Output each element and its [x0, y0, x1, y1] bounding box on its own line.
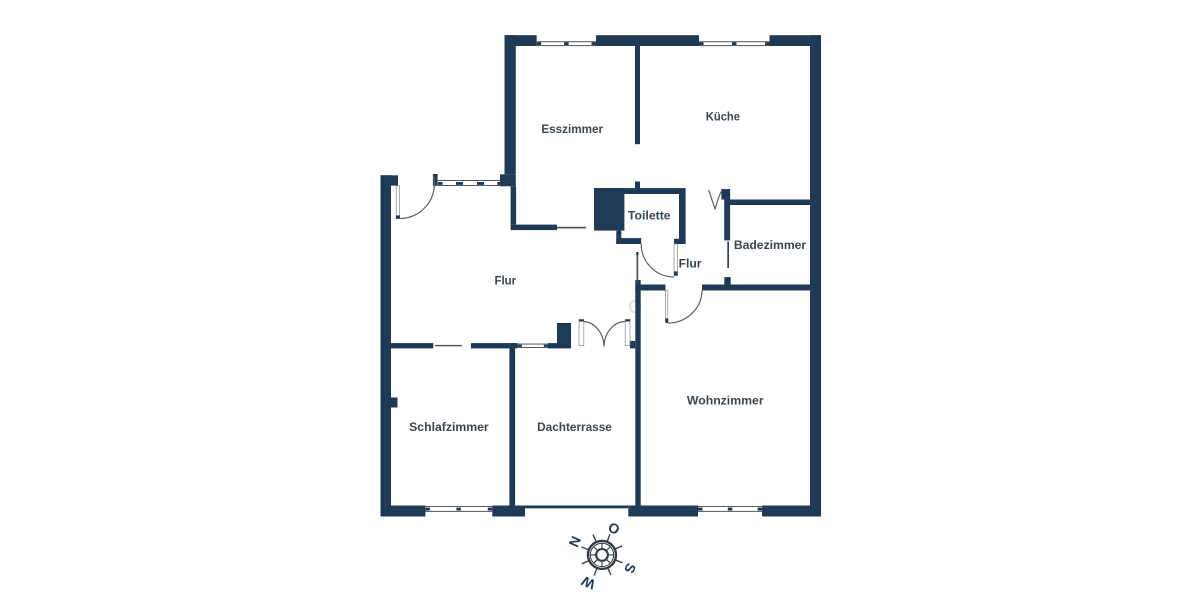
svg-text:Badezimmer: Badezimmer — [734, 238, 807, 252]
svg-text:Wohnzimmer: Wohnzimmer — [687, 393, 764, 407]
svg-text:Schlafzimmer: Schlafzimmer — [409, 420, 489, 434]
svg-text:Esszimmer: Esszimmer — [541, 122, 603, 136]
svg-text:Flur: Flur — [679, 257, 702, 271]
svg-text:Flur: Flur — [494, 274, 516, 288]
svg-text:Küche: Küche — [706, 110, 740, 124]
svg-text:Dachterrasse: Dachterrasse — [537, 420, 612, 434]
svg-text:Toilette: Toilette — [628, 208, 671, 222]
